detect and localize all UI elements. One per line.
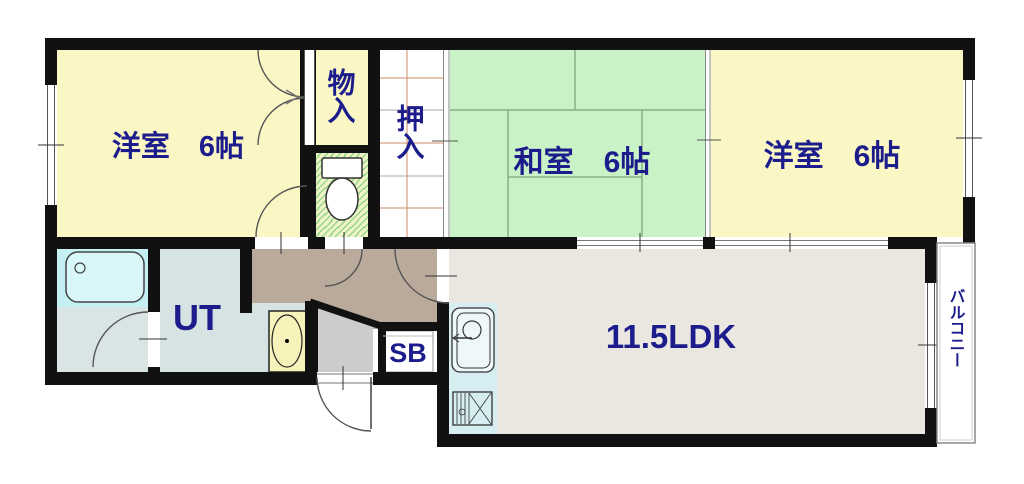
washbasin-icon	[269, 311, 306, 372]
bedroom-left-label: 洋室 6帖	[112, 129, 244, 163]
bathtub-icon	[66, 252, 144, 302]
bedroom-right-label: 洋室 6帖	[764, 139, 901, 173]
shoebox-label: SB	[389, 338, 427, 368]
utility-label: UT	[173, 297, 221, 338]
storage-label: 物入	[325, 68, 356, 124]
japanese-room-label: 和室 6帖	[514, 145, 651, 179]
oshiire-label: 押入	[394, 103, 425, 160]
toilet-fixture-icon	[322, 158, 362, 220]
ldk-label: 11.5LDK	[606, 318, 736, 355]
floorplan-drawing: 洋室 6帖 和室 6帖 洋室 6帖 11.5LDK UT SB 物入 押入 バル…	[0, 0, 1024, 484]
balcony-label: バルコニー	[947, 288, 966, 368]
japanese-room-floor	[450, 50, 705, 237]
entrance-door-arc	[317, 377, 371, 431]
floorplan-page: 洋室 6帖 和室 6帖 洋室 6帖 11.5LDK UT SB 物入 押入 バル…	[0, 0, 1024, 484]
kitchen-sink-icon	[452, 308, 494, 372]
